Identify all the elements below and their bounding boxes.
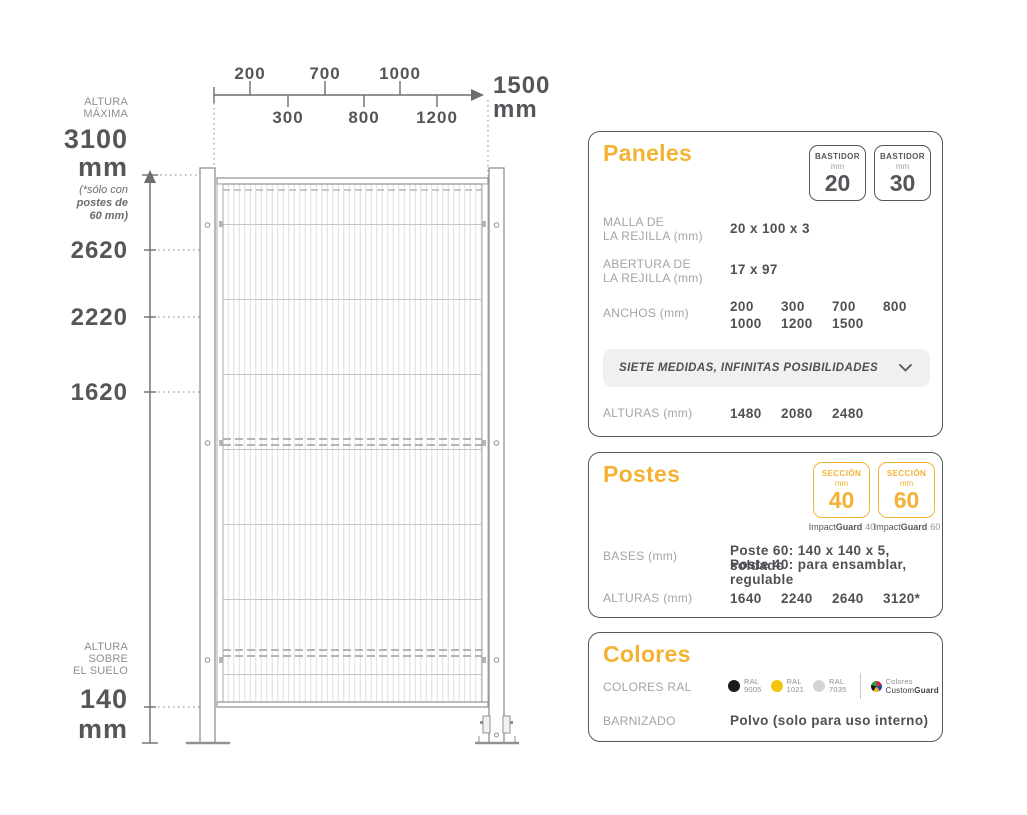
colores-card: Colores COLORES RAL RAL 9005 RAL 1021	[588, 632, 943, 742]
postes-alturas-value: 2240	[781, 591, 813, 606]
ral-9005-text: RAL 9005	[744, 678, 762, 695]
altura-maxima-label-line2: MÁXIMA	[60, 108, 128, 120]
abertura-value: 17 x 97	[730, 262, 778, 277]
impactguard-40-caption: ImpactGuard40	[807, 522, 877, 532]
bastidor-20-value: 20	[825, 172, 851, 194]
colores-title: Colores	[603, 641, 691, 668]
customguard-brand: Custom	[886, 686, 915, 695]
seccion-60-label: SECCIÓN	[887, 469, 926, 478]
height-scale-dotted-leaders	[158, 175, 206, 707]
width-scale	[214, 81, 474, 107]
bastidor-30-value: 30	[890, 172, 916, 194]
altura-suelo-label-line1: ALTURA	[60, 641, 128, 653]
seccion-40-value: 40	[829, 489, 855, 511]
bases-label: BASES (mm)	[603, 550, 677, 564]
swatch-divider	[860, 673, 861, 699]
paneles-alturas-value: 2080	[781, 406, 813, 421]
barnizado-value: Polvo (solo para uso interno)	[730, 713, 928, 728]
anchos-label: ANCHOS (mm)	[603, 307, 689, 321]
siete-medidas-banner-text: SIETE MEDIDAS, INFINITAS POSIBILIDADES	[619, 362, 878, 374]
seccion-60-badge: SECCIÓN mm 60	[878, 462, 935, 518]
caption-brand: Impact	[809, 522, 836, 532]
bastidor-20-label: BASTIDOR	[815, 152, 860, 161]
altura-suelo-unit: mm	[56, 714, 128, 745]
ral-1021-text: RAL 1021	[787, 678, 805, 695]
colores-ral-label: COLORES RAL	[603, 681, 692, 695]
altura-maxima-label: ALTURA MÁXIMA	[60, 96, 128, 120]
barnizado-label: BARNIZADO	[603, 715, 676, 729]
abertura-label: ABERTURA DE LA REJILLA (mm)	[603, 258, 703, 285]
customguard-brand-bold: Guard	[914, 686, 939, 695]
anchos-value: 1000	[730, 316, 762, 331]
bases-value-line2: Poste 40: para ensamblar, regulable	[730, 557, 942, 587]
altura-maxima-note: (*sólo con postes de 60 mm)	[48, 184, 128, 223]
altura-suelo-label: ALTURA SOBRE EL SUELO	[60, 641, 128, 677]
abertura-label-line1: ABERTURA DE	[603, 258, 703, 272]
paneles-card: Paneles BASTIDOR mm 20 BASTIDOR mm 30 MA…	[588, 131, 943, 437]
level-label-2220: 2220	[56, 304, 128, 332]
width-label-1000: 1000	[374, 64, 426, 84]
width-total-label: 1500 mm	[493, 74, 550, 122]
postes-alturas-value: 2640	[832, 591, 864, 606]
altura-maxima-label-line1: ALTURA	[60, 96, 128, 108]
paneles-alturas-label: ALTURAS (mm)	[603, 407, 692, 421]
level-label-2620: 2620	[56, 237, 128, 265]
malla-label-line2: LA REJILLA (mm)	[603, 230, 703, 244]
bastidor-20-badge: BASTIDOR mm 20	[809, 145, 866, 201]
anchos-value: 1200	[781, 316, 813, 331]
seccion-40-badge: SECCIÓN mm 40	[813, 462, 870, 518]
postes-title: Postes	[603, 461, 680, 488]
siete-medidas-banner[interactable]: SIETE MEDIDAS, INFINITAS POSIBILIDADES	[603, 349, 930, 387]
anchos-value: 800	[883, 299, 907, 314]
ral-code: 7035	[829, 686, 847, 695]
altura-maxima-value: 3100	[56, 124, 128, 155]
altura-suelo-label-line3: EL SUELO	[60, 665, 128, 677]
malla-value: 20 x 100 x 3	[730, 221, 810, 236]
seccion-40-label: SECCIÓN	[822, 469, 861, 478]
ral-code: 9005	[744, 686, 762, 695]
note-line2: postes de	[48, 197, 128, 210]
width-total-value: 1500	[493, 74, 550, 98]
customguard-color-wheel-icon	[871, 681, 882, 692]
width-label-300: 300	[266, 108, 310, 128]
caption-brand-bold: Guard	[901, 522, 928, 532]
width-label-200: 200	[228, 64, 272, 84]
caption-brand-bold: Guard	[836, 522, 863, 532]
caption-num: 60	[930, 522, 940, 532]
ral-swatch-row: RAL 9005 RAL 1021 RAL 7035	[728, 673, 948, 699]
bastidor-30-badge: BASTIDOR mm 30	[874, 145, 931, 201]
bastidor-30-label: BASTIDOR	[880, 152, 925, 161]
width-label-700: 700	[303, 64, 347, 84]
level-label-1620: 1620	[56, 379, 128, 407]
impactguard-60-caption: ImpactGuard60	[872, 522, 942, 532]
width-label-800: 800	[342, 108, 386, 128]
postes-alturas-value: 1640	[730, 591, 762, 606]
postes-card: Postes SECCIÓN mm 40 SECCIÓN mm 60 Impac…	[588, 452, 943, 618]
paneles-alturas-value: 2480	[832, 406, 864, 421]
altura-suelo-label-line2: SOBRE	[60, 653, 128, 665]
ral-code: 1021	[787, 686, 805, 695]
height-scale	[142, 175, 158, 743]
ral-9005-dot-icon	[728, 680, 740, 692]
malla-label: MALLA DE LA REJILLA (mm)	[603, 216, 703, 243]
postes-alturas-value: 3120*	[883, 591, 920, 606]
abertura-label-line2: LA REJILLA (mm)	[603, 272, 703, 286]
customguard-line1: Colores	[886, 677, 939, 686]
ral-1021-dot-icon	[771, 680, 783, 692]
width-label-1200: 1200	[411, 108, 463, 128]
customguard-swatch: Colores CustomGuard	[871, 677, 939, 695]
width-scale-arrowhead	[471, 89, 484, 101]
postes-alturas-label: ALTURAS (mm)	[603, 592, 692, 606]
ral-7035-dot-icon	[813, 680, 825, 692]
spec-sheet: 200 700 1000 300 800 1200 1500 mm ALTURA…	[0, 0, 1027, 815]
anchos-value: 300	[781, 299, 805, 314]
anchos-value: 1500	[832, 316, 864, 331]
height-scale-arrowhead	[144, 170, 156, 183]
width-total-unit: mm	[493, 98, 550, 122]
anchos-value: 200	[730, 299, 754, 314]
paneles-alturas-value: 1480	[730, 406, 762, 421]
ral-9005-swatch: RAL 9005	[728, 678, 762, 695]
mesh-panel	[217, 178, 488, 707]
note-line3: 60 mm)	[48, 210, 128, 223]
ral-7035-text: RAL 7035	[829, 678, 847, 695]
malla-label-line1: MALLA DE	[603, 216, 703, 230]
note-line1: (*sólo con	[48, 184, 128, 197]
customguard-text: Colores CustomGuard	[886, 677, 939, 695]
paneles-title: Paneles	[603, 140, 692, 167]
altura-suelo-value: 140	[56, 684, 128, 715]
anchos-value: 700	[832, 299, 856, 314]
caption-brand: Impact	[874, 522, 901, 532]
ral-1021-swatch: RAL 1021	[771, 678, 805, 695]
chevron-down-icon	[899, 364, 912, 372]
seccion-60-value: 60	[894, 489, 920, 511]
altura-maxima-unit: mm	[56, 152, 128, 183]
ral-7035-swatch: RAL 7035	[813, 678, 847, 695]
